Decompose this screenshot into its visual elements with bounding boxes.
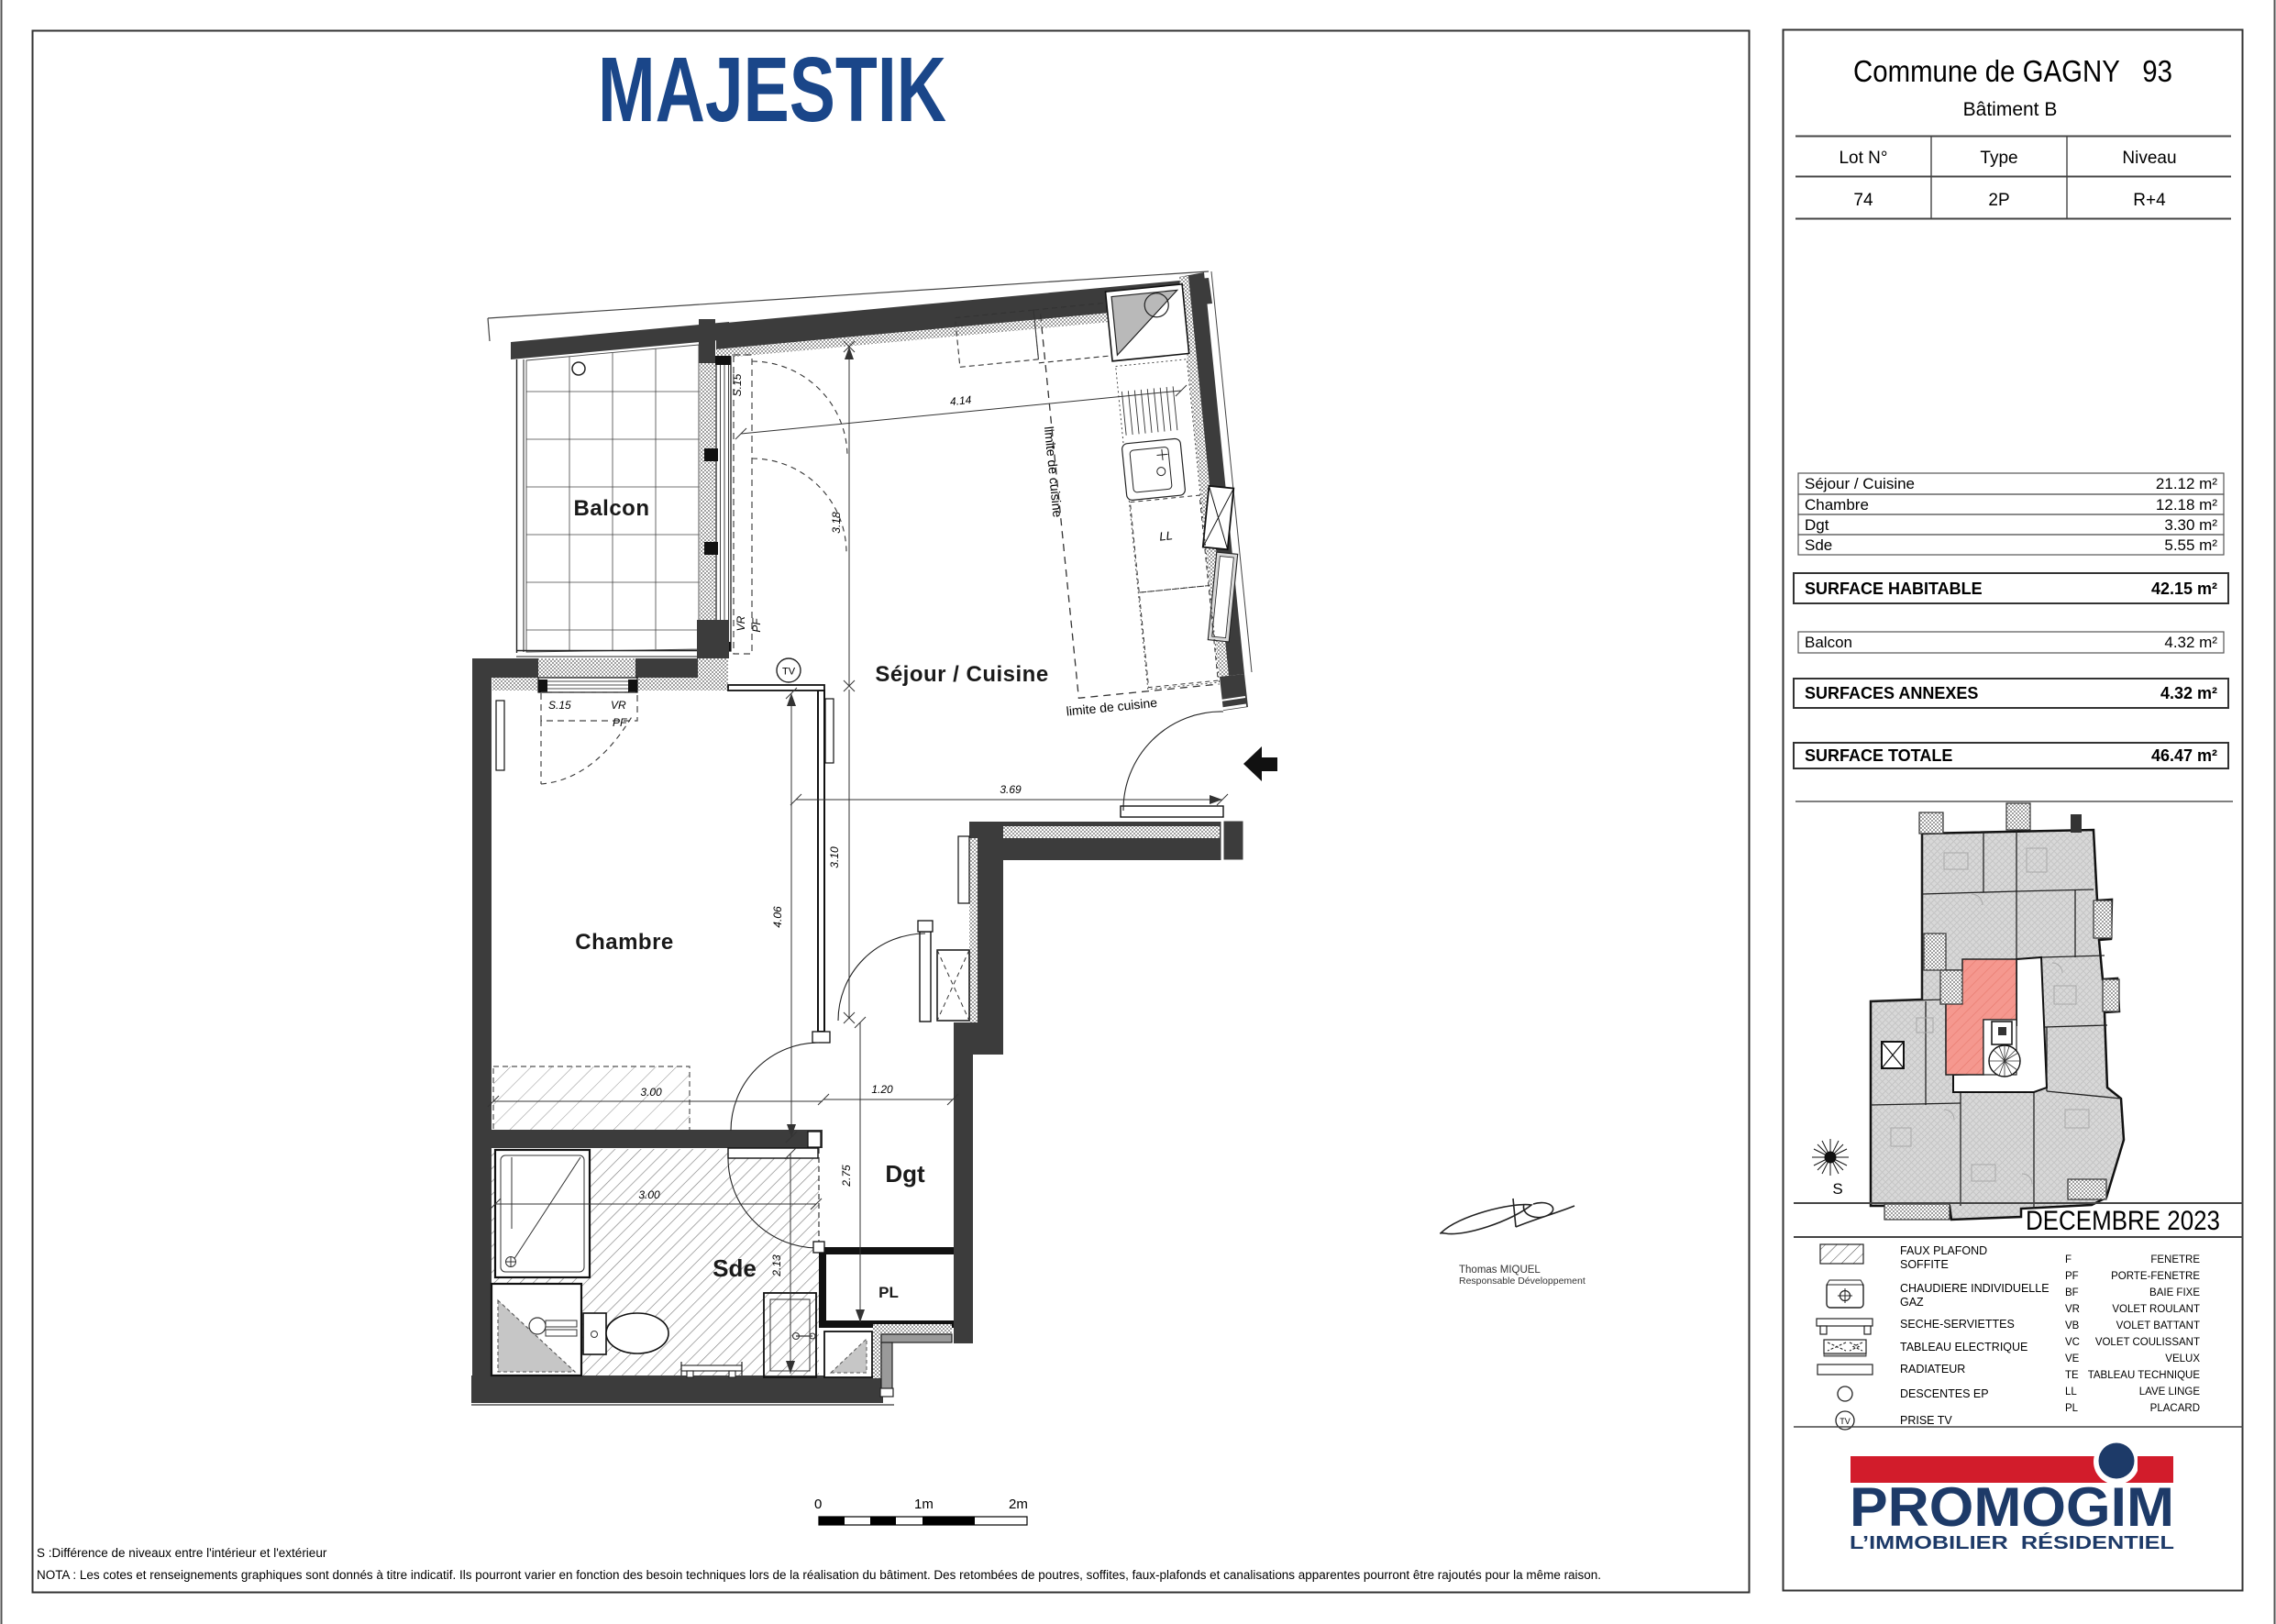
svg-text:PROMOGIM: PROMOGIM xyxy=(1850,1476,2174,1538)
svg-text:VR: VR xyxy=(2065,1304,2080,1315)
svg-text:Séjour / Cuisine: Séjour / Cuisine xyxy=(875,662,1048,687)
svg-text:LL: LL xyxy=(2065,1386,2077,1398)
svg-text:PORTE-FENETRE: PORTE-FENETRE xyxy=(2111,1271,2200,1282)
svg-text:4.32 m²: 4.32 m² xyxy=(2160,684,2217,702)
svg-text:46.47 m²: 46.47 m² xyxy=(2151,746,2217,765)
svg-text:Responsable Développement: Responsable Développement xyxy=(1459,1276,1585,1287)
svg-text:PF: PF xyxy=(613,716,627,729)
svg-text:Commune de GAGNY 93: Commune de GAGNY 93 xyxy=(1853,54,2172,88)
svg-text:21.12 m²: 21.12 m² xyxy=(2156,475,2217,492)
svg-text:3.18: 3.18 xyxy=(830,512,843,534)
svg-text:Lot N°: Lot N° xyxy=(1839,149,1887,168)
svg-text:FAUX PLAFOND: FAUX PLAFOND xyxy=(1900,1244,1987,1257)
svg-text:2P: 2P xyxy=(1988,191,2009,210)
svg-text:TABLEAU ELECTRIQUE: TABLEAU ELECTRIQUE xyxy=(1900,1341,2027,1353)
svg-text:Niveau: Niveau xyxy=(2122,149,2176,168)
svg-text:VOLET COULISSANT: VOLET COULISSANT xyxy=(2095,1337,2200,1348)
svg-text:3.00: 3.00 xyxy=(640,1086,662,1099)
svg-text:4.14: 4.14 xyxy=(949,393,972,408)
svg-text:Dgt: Dgt xyxy=(885,1160,925,1188)
svg-text:PF: PF xyxy=(750,618,763,633)
svg-text:R+4: R+4 xyxy=(2133,191,2166,210)
svg-text:GAZ: GAZ xyxy=(1900,1296,1924,1309)
svg-text:F: F xyxy=(2065,1254,2072,1265)
svg-text:Bâtiment B: Bâtiment B xyxy=(1963,99,2058,120)
svg-text:VOLET BATTANT: VOLET BATTANT xyxy=(2116,1320,2200,1331)
svg-text:VB: VB xyxy=(2065,1320,2080,1331)
svg-text:Type: Type xyxy=(1980,149,2017,168)
svg-text:VR: VR xyxy=(611,699,626,712)
svg-text:CHAUDIERE INDIVIDUELLE: CHAUDIERE INDIVIDUELLE xyxy=(1900,1282,2050,1295)
svg-text:3.10: 3.10 xyxy=(828,846,841,868)
svg-text:S.15: S.15 xyxy=(548,699,571,712)
svg-text:1.20: 1.20 xyxy=(871,1083,893,1096)
svg-text:Séjour / Cuisine: Séjour / Cuisine xyxy=(1805,475,1915,492)
svg-text:S.15: S.15 xyxy=(731,373,744,396)
svg-text:Thomas MIQUEL: Thomas MIQUEL xyxy=(1459,1265,1541,1276)
svg-text:VELUX: VELUX xyxy=(2165,1353,2200,1364)
svg-text:4.32 m²: 4.32 m² xyxy=(2164,634,2217,651)
svg-text:2.75: 2.75 xyxy=(840,1165,853,1188)
svg-text:3.00: 3.00 xyxy=(638,1188,660,1201)
svg-text:3.30 m²: 3.30 m² xyxy=(2164,516,2217,534)
svg-text:SURFACES ANNEXES: SURFACES ANNEXES xyxy=(1805,684,1978,702)
svg-text:Dgt: Dgt xyxy=(1805,516,1829,534)
svg-text:DESCENTES EP: DESCENTES EP xyxy=(1900,1387,1989,1400)
svg-text:0: 0 xyxy=(814,1497,822,1512)
svg-text:4.06: 4.06 xyxy=(771,906,784,928)
svg-text:SECHE-SERVIETTES: SECHE-SERVIETTES xyxy=(1900,1318,2015,1331)
svg-text:FENETRE: FENETRE xyxy=(2150,1254,2200,1265)
svg-text:Balcon: Balcon xyxy=(573,496,649,521)
svg-text:TABLEAU TECHNIQUE: TABLEAU TECHNIQUE xyxy=(2088,1370,2201,1381)
svg-text:L’IMMOBILIER RÉSIDENTIEL: L’IMMOBILIER RÉSIDENTIEL xyxy=(1850,1532,2174,1553)
svg-text:TV: TV xyxy=(782,667,796,678)
svg-text:1m: 1m xyxy=(914,1497,934,1512)
svg-text:PL: PL xyxy=(878,1284,899,1301)
svg-text:SURFACE TOTALE: SURFACE TOTALE xyxy=(1805,746,1952,765)
svg-text:PF: PF xyxy=(2065,1271,2079,1282)
svg-text:PLACARD: PLACARD xyxy=(2150,1403,2200,1414)
svg-text:74: 74 xyxy=(1853,191,1873,210)
svg-text:2.13: 2.13 xyxy=(770,1254,783,1277)
svg-text:BAIE FIXE: BAIE FIXE xyxy=(2149,1287,2200,1298)
svg-text:RADIATEUR: RADIATEUR xyxy=(1900,1363,1965,1375)
svg-text:SOFFITE: SOFFITE xyxy=(1900,1258,1949,1271)
svg-text:PRISE TV: PRISE TV xyxy=(1900,1414,1952,1427)
svg-text:S :Différence de niveaux entre: S :Différence de niveaux entre l'intérie… xyxy=(37,1546,327,1560)
svg-text:5.55 m²: 5.55 m² xyxy=(2164,536,2217,554)
svg-text:3.69: 3.69 xyxy=(1000,783,1022,796)
svg-text:LL: LL xyxy=(1159,528,1174,543)
svg-text:Sde: Sde xyxy=(1805,536,1832,554)
svg-text:Balcon: Balcon xyxy=(1805,634,1852,651)
svg-text:VE: VE xyxy=(2065,1353,2080,1364)
svg-text:VOLET ROULANT: VOLET ROULANT xyxy=(2112,1304,2200,1315)
svg-text:NOTA : Les cotes et renseignem: NOTA : Les cotes et renseignements graph… xyxy=(37,1568,1601,1582)
svg-text:42.15 m²: 42.15 m² xyxy=(2151,580,2217,598)
svg-text:TE: TE xyxy=(2065,1370,2079,1381)
svg-text:2m: 2m xyxy=(1009,1497,1028,1512)
svg-text:VR: VR xyxy=(735,615,747,631)
svg-text:TV: TV xyxy=(1840,1417,1851,1426)
svg-text:Chambre: Chambre xyxy=(1805,496,1869,514)
svg-text:12.18 m²: 12.18 m² xyxy=(2156,496,2217,514)
svg-text:SURFACE HABITABLE: SURFACE HABITABLE xyxy=(1805,580,1983,598)
svg-text:S: S xyxy=(1832,1180,1842,1198)
svg-text:limite de cuisine: limite de cuisine xyxy=(1042,425,1066,518)
svg-text:BF: BF xyxy=(2065,1287,2079,1298)
svg-text:Sde: Sde xyxy=(713,1254,757,1282)
svg-text:MAJESTIK: MAJESTIK xyxy=(598,39,946,141)
svg-text:VC: VC xyxy=(2065,1337,2080,1348)
svg-text:DECEMBRE 2023: DECEMBRE 2023 xyxy=(2026,1206,2220,1236)
svg-text:PL: PL xyxy=(2065,1403,2079,1414)
svg-text:LAVE LINGE: LAVE LINGE xyxy=(2139,1386,2201,1398)
svg-text:Chambre: Chambre xyxy=(575,930,674,955)
